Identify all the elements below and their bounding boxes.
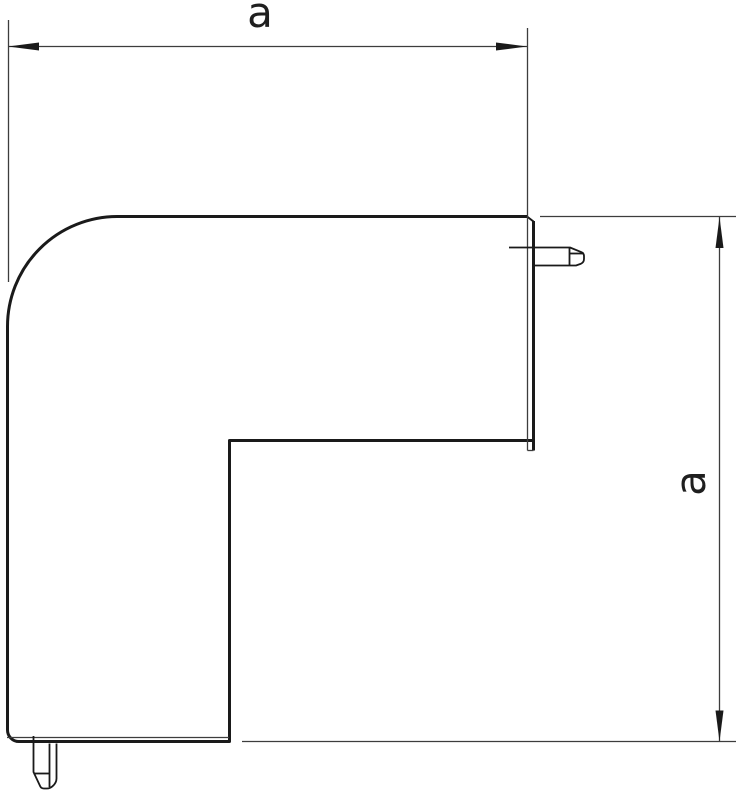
arrow-up-icon <box>716 217 724 248</box>
coupling-pin-right <box>509 248 584 266</box>
dimension-label-height: a <box>668 460 714 506</box>
dimension-label-width: a <box>238 0 282 35</box>
drawing-svg <box>0 0 739 794</box>
arrow-down-icon <box>716 711 724 742</box>
outer-contour <box>8 217 534 742</box>
coupling-pin-bottom <box>34 736 57 789</box>
arrow-left-icon <box>8 43 39 51</box>
pin-right-contour <box>509 248 584 266</box>
part-outline <box>8 217 534 742</box>
arrow-right-icon <box>496 43 527 51</box>
pin-bottom-contour <box>34 736 57 789</box>
joint-lines <box>7 216 534 738</box>
technical-drawing-flat-angle: a a <box>0 0 739 794</box>
vertical-dimension <box>242 217 736 742</box>
horizontal-dimension <box>8 20 528 282</box>
